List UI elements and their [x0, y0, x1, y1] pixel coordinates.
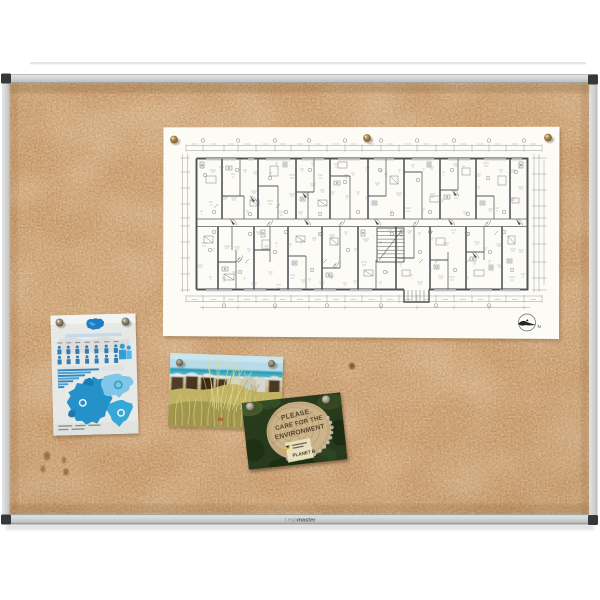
svg-text:N: N — [538, 324, 541, 329]
svg-text:Legamaster: Legamaster — [285, 518, 317, 524]
